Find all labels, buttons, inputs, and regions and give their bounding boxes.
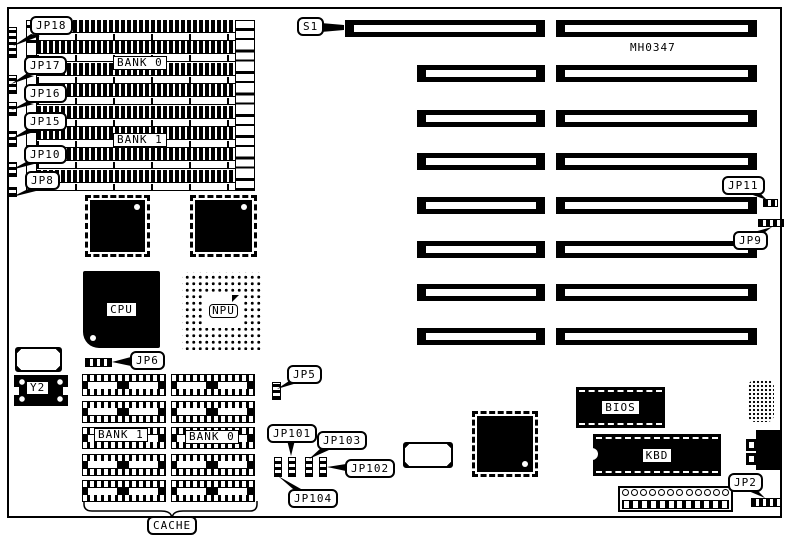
pin1-dot bbox=[522, 461, 528, 467]
callout-jp17: JP17 bbox=[24, 56, 67, 75]
power-pin bbox=[660, 501, 665, 508]
power-connector bbox=[618, 486, 733, 512]
power-pin bbox=[704, 501, 709, 508]
callout-jp2-text: JP2 bbox=[734, 476, 757, 489]
npu-socket: NPU bbox=[182, 272, 263, 350]
power-pin bbox=[686, 489, 693, 496]
callout-jp10-text: JP10 bbox=[30, 148, 61, 161]
cpu-label: CPU bbox=[107, 303, 136, 316]
isa-slot bbox=[556, 328, 757, 345]
isa-slot bbox=[417, 197, 545, 214]
power-pin bbox=[649, 489, 656, 496]
power-pin bbox=[642, 501, 647, 508]
power-pin bbox=[631, 489, 638, 496]
simm-rail-right bbox=[235, 20, 255, 191]
power-pin bbox=[658, 489, 665, 496]
power-pin bbox=[669, 501, 674, 508]
power-pin bbox=[622, 489, 629, 496]
y2-label: Y2 bbox=[26, 381, 49, 395]
callout-jp18: JP18 bbox=[30, 16, 73, 35]
jumper-jp10 bbox=[8, 162, 17, 177]
simm-rail-left bbox=[26, 20, 37, 191]
npu-window: NPU bbox=[205, 294, 242, 328]
isa-slot bbox=[417, 284, 545, 301]
jumper-jp11 bbox=[763, 199, 778, 207]
cache-bank1-label: BANK 1 bbox=[94, 428, 148, 442]
qfp-chip-2 bbox=[190, 195, 257, 257]
oscillator-1 bbox=[15, 347, 62, 372]
simm-socket bbox=[37, 106, 235, 127]
jumper-jp18 bbox=[8, 27, 17, 58]
callout-jp11: JP11 bbox=[722, 176, 765, 195]
keyboard-connector bbox=[756, 430, 781, 470]
jumper-jp2 bbox=[751, 498, 782, 507]
npu-orientation-arrow bbox=[232, 295, 239, 302]
jumper-jp16 bbox=[8, 102, 17, 116]
callout-jp103-text: JP103 bbox=[323, 434, 361, 447]
power-pin bbox=[633, 501, 638, 508]
callout-jp103: JP103 bbox=[317, 431, 367, 450]
power-pin bbox=[677, 501, 682, 508]
callout-cache: CACHE bbox=[147, 516, 197, 535]
callout-jp8: JP8 bbox=[25, 171, 60, 190]
isa-slot bbox=[417, 241, 545, 258]
callout-jp16-text: JP16 bbox=[30, 87, 61, 100]
qfp-chip-1 bbox=[85, 195, 150, 257]
isa-slot bbox=[417, 153, 545, 170]
dip-socket bbox=[171, 480, 255, 502]
isa-slot bbox=[417, 328, 545, 345]
callout-jp2: JP2 bbox=[728, 473, 763, 492]
power-pin bbox=[686, 501, 691, 508]
jumper-jp6 bbox=[85, 358, 112, 367]
power-pin bbox=[722, 489, 729, 496]
kbd-controller-chip: KBD bbox=[593, 434, 721, 476]
simm-sockets bbox=[37, 20, 235, 191]
isa-slot bbox=[556, 284, 757, 301]
power-pins-bottom bbox=[622, 500, 729, 509]
simm-bank1-label: BANK 1 bbox=[113, 133, 167, 147]
isa-slot bbox=[417, 65, 545, 82]
power-pin bbox=[676, 489, 683, 496]
simm-bank-area bbox=[26, 20, 255, 191]
power-pins-top bbox=[622, 489, 729, 496]
isa-slot bbox=[417, 110, 545, 127]
jumper-jp102 bbox=[319, 457, 327, 477]
callout-jp102: JP102 bbox=[345, 459, 395, 478]
callout-jp104-text: JP104 bbox=[294, 492, 332, 505]
jumper-jp17 bbox=[8, 75, 17, 94]
isa-slot bbox=[556, 110, 757, 127]
callout-s1-text: S1 bbox=[303, 20, 318, 33]
dip-socket bbox=[82, 480, 166, 502]
crystal-y2: Y2 bbox=[14, 375, 68, 406]
dip-socket bbox=[171, 374, 255, 396]
simm-bank0-label: BANK 0 bbox=[113, 56, 167, 70]
dip-socket bbox=[171, 454, 255, 476]
isa-slot bbox=[556, 20, 757, 37]
callout-jp5: JP5 bbox=[287, 365, 322, 384]
jumper-jp9 bbox=[758, 219, 784, 227]
power-pin bbox=[704, 489, 711, 496]
isa-slot bbox=[556, 197, 757, 214]
callout-jp10: JP10 bbox=[24, 145, 67, 164]
callout-jp6: JP6 bbox=[130, 351, 165, 370]
callout-jp17-text: JP17 bbox=[30, 59, 61, 72]
isa-slot bbox=[556, 65, 757, 82]
power-pin bbox=[713, 489, 720, 496]
oscillator-2 bbox=[403, 442, 453, 468]
power-pin bbox=[667, 489, 674, 496]
power-pin bbox=[624, 501, 629, 508]
dip-socket bbox=[171, 401, 255, 423]
callout-jp6-text: JP6 bbox=[136, 354, 159, 367]
jumper-jp101 bbox=[288, 457, 296, 477]
power-pin bbox=[713, 501, 718, 508]
bios-label: BIOS bbox=[602, 401, 639, 414]
board-part-number: MH0347 bbox=[630, 41, 676, 54]
isa-slot bbox=[345, 20, 545, 37]
power-pin bbox=[695, 489, 702, 496]
callout-jp101: JP101 bbox=[267, 424, 317, 443]
callout-jp18-text: JP18 bbox=[36, 19, 67, 32]
power-pin bbox=[651, 501, 656, 508]
isa-slot bbox=[556, 241, 757, 258]
resistor-pack bbox=[748, 380, 774, 422]
isa-slot bbox=[556, 153, 757, 170]
dip-socket bbox=[82, 401, 166, 423]
callout-jp104: JP104 bbox=[288, 489, 338, 508]
callout-jp102-text: JP102 bbox=[351, 462, 389, 475]
power-pin bbox=[640, 489, 647, 496]
callout-jp15: JP15 bbox=[24, 112, 67, 131]
power-pin bbox=[695, 501, 700, 508]
pin1-dot bbox=[134, 204, 140, 210]
jumper-jp104 bbox=[274, 457, 282, 477]
callout-s1: S1 bbox=[297, 17, 324, 36]
callout-jp11-text: JP11 bbox=[728, 179, 759, 192]
kbd-label: KBD bbox=[643, 449, 672, 462]
connector-pin-box bbox=[746, 453, 756, 465]
callout-jp16: JP16 bbox=[24, 84, 67, 103]
callout-jp101-text: JP101 bbox=[273, 427, 311, 440]
dip-socket bbox=[82, 374, 166, 396]
jumper-jp5 bbox=[272, 382, 281, 400]
simm-socket bbox=[37, 148, 235, 169]
callout-cache-text: CACHE bbox=[153, 519, 191, 532]
bios-chip: BIOS bbox=[576, 387, 665, 428]
power-pin bbox=[722, 501, 727, 508]
callout-jp5-text: JP5 bbox=[293, 368, 316, 381]
motherboard-diagram: BANK 0 BANK 1 MH0347 CPU NPU bbox=[0, 0, 791, 543]
callout-jp9-text: JP9 bbox=[739, 234, 762, 247]
cpu-chip: CPU bbox=[83, 271, 160, 348]
callout-jp15-text: JP15 bbox=[30, 115, 61, 128]
qfp-chip-3 bbox=[472, 411, 538, 477]
pin1-dot bbox=[241, 204, 247, 210]
connector-pin-box bbox=[746, 439, 756, 451]
callout-jp9: JP9 bbox=[733, 231, 768, 250]
jumper-jp15 bbox=[8, 131, 17, 147]
simm-socket bbox=[37, 84, 235, 105]
simm-socket bbox=[37, 170, 235, 191]
jumper-jp8 bbox=[8, 187, 17, 197]
callout-jp8-text: JP8 bbox=[31, 174, 54, 187]
cache-bank0-label: BANK 0 bbox=[185, 430, 239, 444]
jumper-jp103 bbox=[305, 457, 313, 477]
dip-socket bbox=[82, 454, 166, 476]
npu-label: NPU bbox=[209, 304, 238, 318]
